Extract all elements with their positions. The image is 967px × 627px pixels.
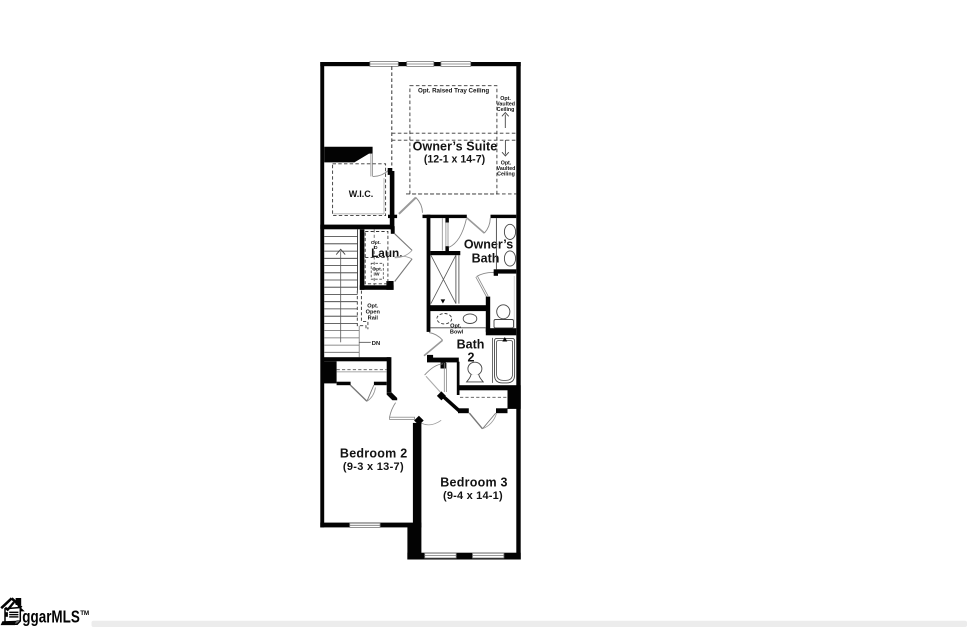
svg-text:Ceiling: Ceiling: [497, 107, 515, 113]
svg-text:Bath: Bath: [457, 337, 485, 351]
svg-text:Bedroom 3: Bedroom 3: [440, 475, 508, 489]
svg-text:Opt. Raised Tray Ceiling: Opt. Raised Tray Ceiling: [418, 87, 489, 94]
svg-text:W.I.C.: W.I.C.: [349, 189, 374, 199]
svg-text:ggarMLS: ggarMLS: [22, 606, 80, 626]
svg-text:Bedroom 2: Bedroom 2: [340, 447, 408, 461]
svg-text:(12-1 x 14-7): (12-1 x 14-7): [424, 153, 485, 165]
svg-text:Owner’s Suite: Owner’s Suite: [413, 140, 498, 154]
svg-text:Owner’s: Owner’s: [464, 237, 513, 251]
svg-text:Ceiling: Ceiling: [497, 171, 515, 177]
svg-text:DN: DN: [372, 341, 380, 347]
svg-text:(9-4 x 14-1): (9-4 x 14-1): [443, 490, 503, 502]
svg-text:Bowl: Bowl: [450, 329, 464, 335]
svg-text:Bath: Bath: [472, 251, 500, 265]
svg-text:Rail: Rail: [368, 316, 379, 322]
svg-text:TM: TM: [80, 610, 89, 617]
svg-text:(9-3 x 13-7): (9-3 x 13-7): [343, 461, 404, 473]
svg-text:W: W: [375, 271, 380, 277]
